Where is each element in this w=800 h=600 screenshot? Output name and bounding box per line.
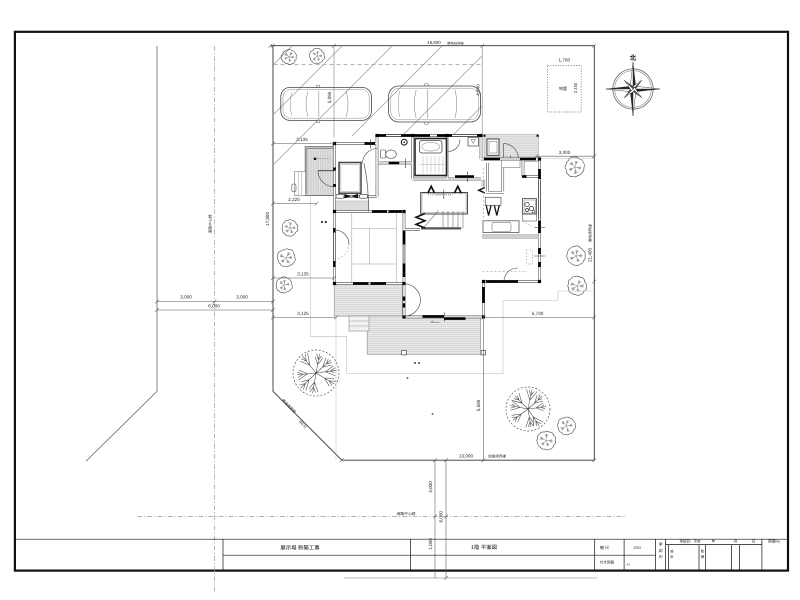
svg-text:21,400: 21,400: [588, 248, 593, 262]
svg-text:承認日：平成: 承認日：平成: [680, 540, 701, 544]
svg-text:3,000: 3,000: [180, 295, 192, 300]
svg-text:13,000: 13,000: [459, 453, 473, 458]
svg-text:4,640: 4,640: [475, 84, 480, 96]
svg-text:6,000: 6,000: [208, 303, 220, 308]
svg-text:16,600: 16,600: [427, 40, 441, 45]
svg-text:2,450: 2,450: [573, 82, 578, 93]
svg-text:3,000: 3,000: [559, 150, 571, 155]
svg-text:道路中心線: 道路中心線: [397, 511, 416, 516]
svg-text:月: 月: [734, 540, 738, 544]
svg-text:3,000: 3,000: [428, 481, 433, 493]
svg-text:1,000: 1,000: [428, 538, 433, 550]
svg-text:3,125: 3,125: [297, 311, 309, 316]
svg-text:印: 印: [659, 554, 663, 559]
svg-text:5,095: 5,095: [327, 91, 332, 103]
svg-text:図面No.: 図面No.: [768, 540, 781, 544]
svg-text:5,590: 5,590: [476, 399, 481, 411]
svg-text:1階 平面図: 1階 平面図: [471, 544, 497, 551]
svg-text:A3: A3: [627, 563, 631, 567]
svg-text:1,700: 1,700: [559, 58, 571, 63]
svg-text:承: 承: [659, 542, 663, 547]
svg-text:隣地境界線: 隣地境界線: [447, 42, 464, 46]
svg-text:道路境界線: 道路境界線: [488, 454, 506, 459]
svg-text:年: 年: [712, 540, 716, 544]
svg-text:3,135: 3,135: [297, 271, 309, 276]
svg-text:1/50: 1/50: [633, 545, 642, 550]
svg-text:展示場 新築工事: 展示場 新築工事: [280, 544, 320, 551]
svg-text:日: 日: [752, 540, 756, 544]
svg-text:道路中心線: 道路中心線: [208, 214, 213, 233]
svg-text:2,225: 2,225: [288, 197, 300, 202]
svg-text:3,135: 3,135: [296, 137, 308, 142]
svg-text:付き図面: 付き図面: [600, 561, 615, 565]
svg-text:隣地境界線: 隣地境界線: [588, 224, 593, 242]
svg-text:北: 北: [630, 54, 637, 62]
svg-text:物置: 物置: [559, 86, 567, 91]
svg-text:3,000: 3,000: [236, 295, 248, 300]
svg-text:認: 認: [659, 548, 663, 553]
svg-text:5,730: 5,730: [532, 311, 544, 316]
svg-text:6,000: 6,000: [439, 511, 444, 523]
svg-text:17,800: 17,800: [265, 212, 270, 226]
svg-text:縮 尺: 縮 尺: [600, 545, 609, 550]
